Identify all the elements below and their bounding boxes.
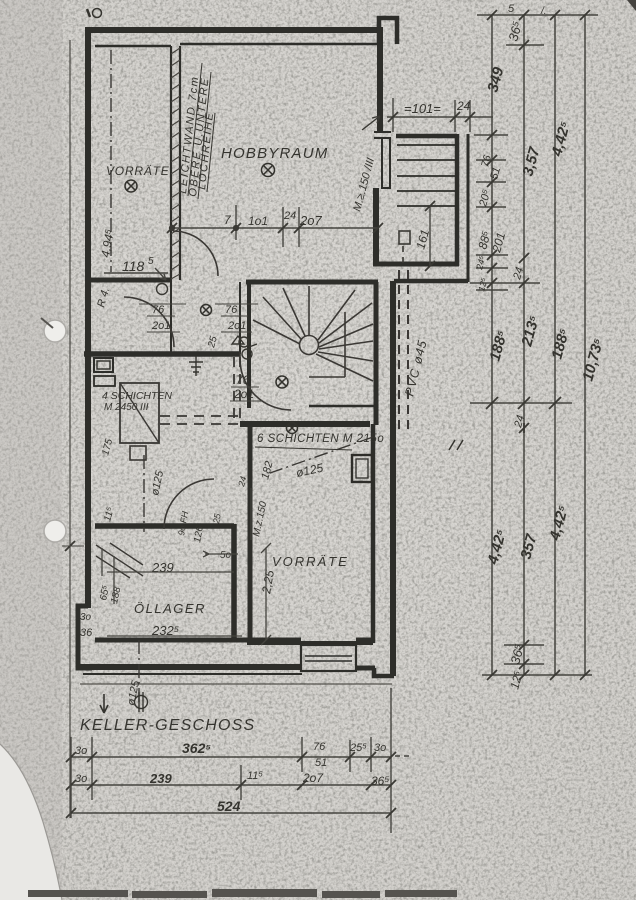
svg-text:=101=: =101= xyxy=(404,101,441,116)
svg-text:25⁵: 25⁵ xyxy=(349,742,367,754)
svg-text:2o7: 2o7 xyxy=(299,213,322,228)
svg-text:6 SCHICHTEN M 215o: 6 SCHICHTEN M 215o xyxy=(257,433,384,445)
svg-text:36⁵: 36⁵ xyxy=(371,774,389,788)
svg-text:76: 76 xyxy=(152,304,165,316)
svg-text:2o1: 2o1 xyxy=(227,320,246,332)
svg-text:4 SCHICHTEN: 4 SCHICHTEN xyxy=(102,390,172,402)
svg-text:3o: 3o xyxy=(75,745,87,757)
svg-text:239: 239 xyxy=(149,771,172,786)
svg-text:76: 76 xyxy=(313,741,326,753)
svg-text:524: 524 xyxy=(217,798,241,814)
svg-text:51: 51 xyxy=(315,757,327,769)
svg-text:118: 118 xyxy=(122,258,145,274)
svg-text:3o: 3o xyxy=(75,773,87,785)
svg-text:VORRÄTE: VORRÄTE xyxy=(272,554,349,569)
svg-text:76: 76 xyxy=(225,304,238,316)
svg-text:HOBBYRAUM: HOBBYRAUM xyxy=(221,145,328,162)
svg-text:/.: /. xyxy=(540,6,547,17)
svg-text:2o1: 2o1 xyxy=(151,320,170,332)
svg-text:5o: 5o xyxy=(220,550,232,561)
svg-text:3o: 3o xyxy=(80,612,92,623)
svg-text:VORRÄTE: VORRÄTE xyxy=(106,164,170,178)
svg-text:36: 36 xyxy=(80,627,93,639)
svg-text:KELLER-GESCHOSS: KELLER-GESCHOSS xyxy=(80,717,255,734)
svg-text:239: 239 xyxy=(151,560,174,575)
svg-text:5: 5 xyxy=(508,3,515,15)
svg-text:2o1: 2o1 xyxy=(233,387,254,401)
svg-text:11⁵: 11⁵ xyxy=(247,770,263,782)
svg-text:M 2450 III: M 2450 III xyxy=(104,402,149,413)
svg-text:24: 24 xyxy=(456,99,471,113)
svg-text:24: 24 xyxy=(283,210,296,222)
svg-text:5: 5 xyxy=(148,256,154,267)
svg-text:362⁵: 362⁵ xyxy=(182,740,211,756)
svg-text:2o7: 2o7 xyxy=(302,771,324,785)
svg-text:ÖLLAGER: ÖLLAGER xyxy=(134,601,206,616)
svg-text:1o1: 1o1 xyxy=(248,214,268,228)
svg-text:3o: 3o xyxy=(374,742,386,754)
svg-text:76: 76 xyxy=(236,373,250,387)
